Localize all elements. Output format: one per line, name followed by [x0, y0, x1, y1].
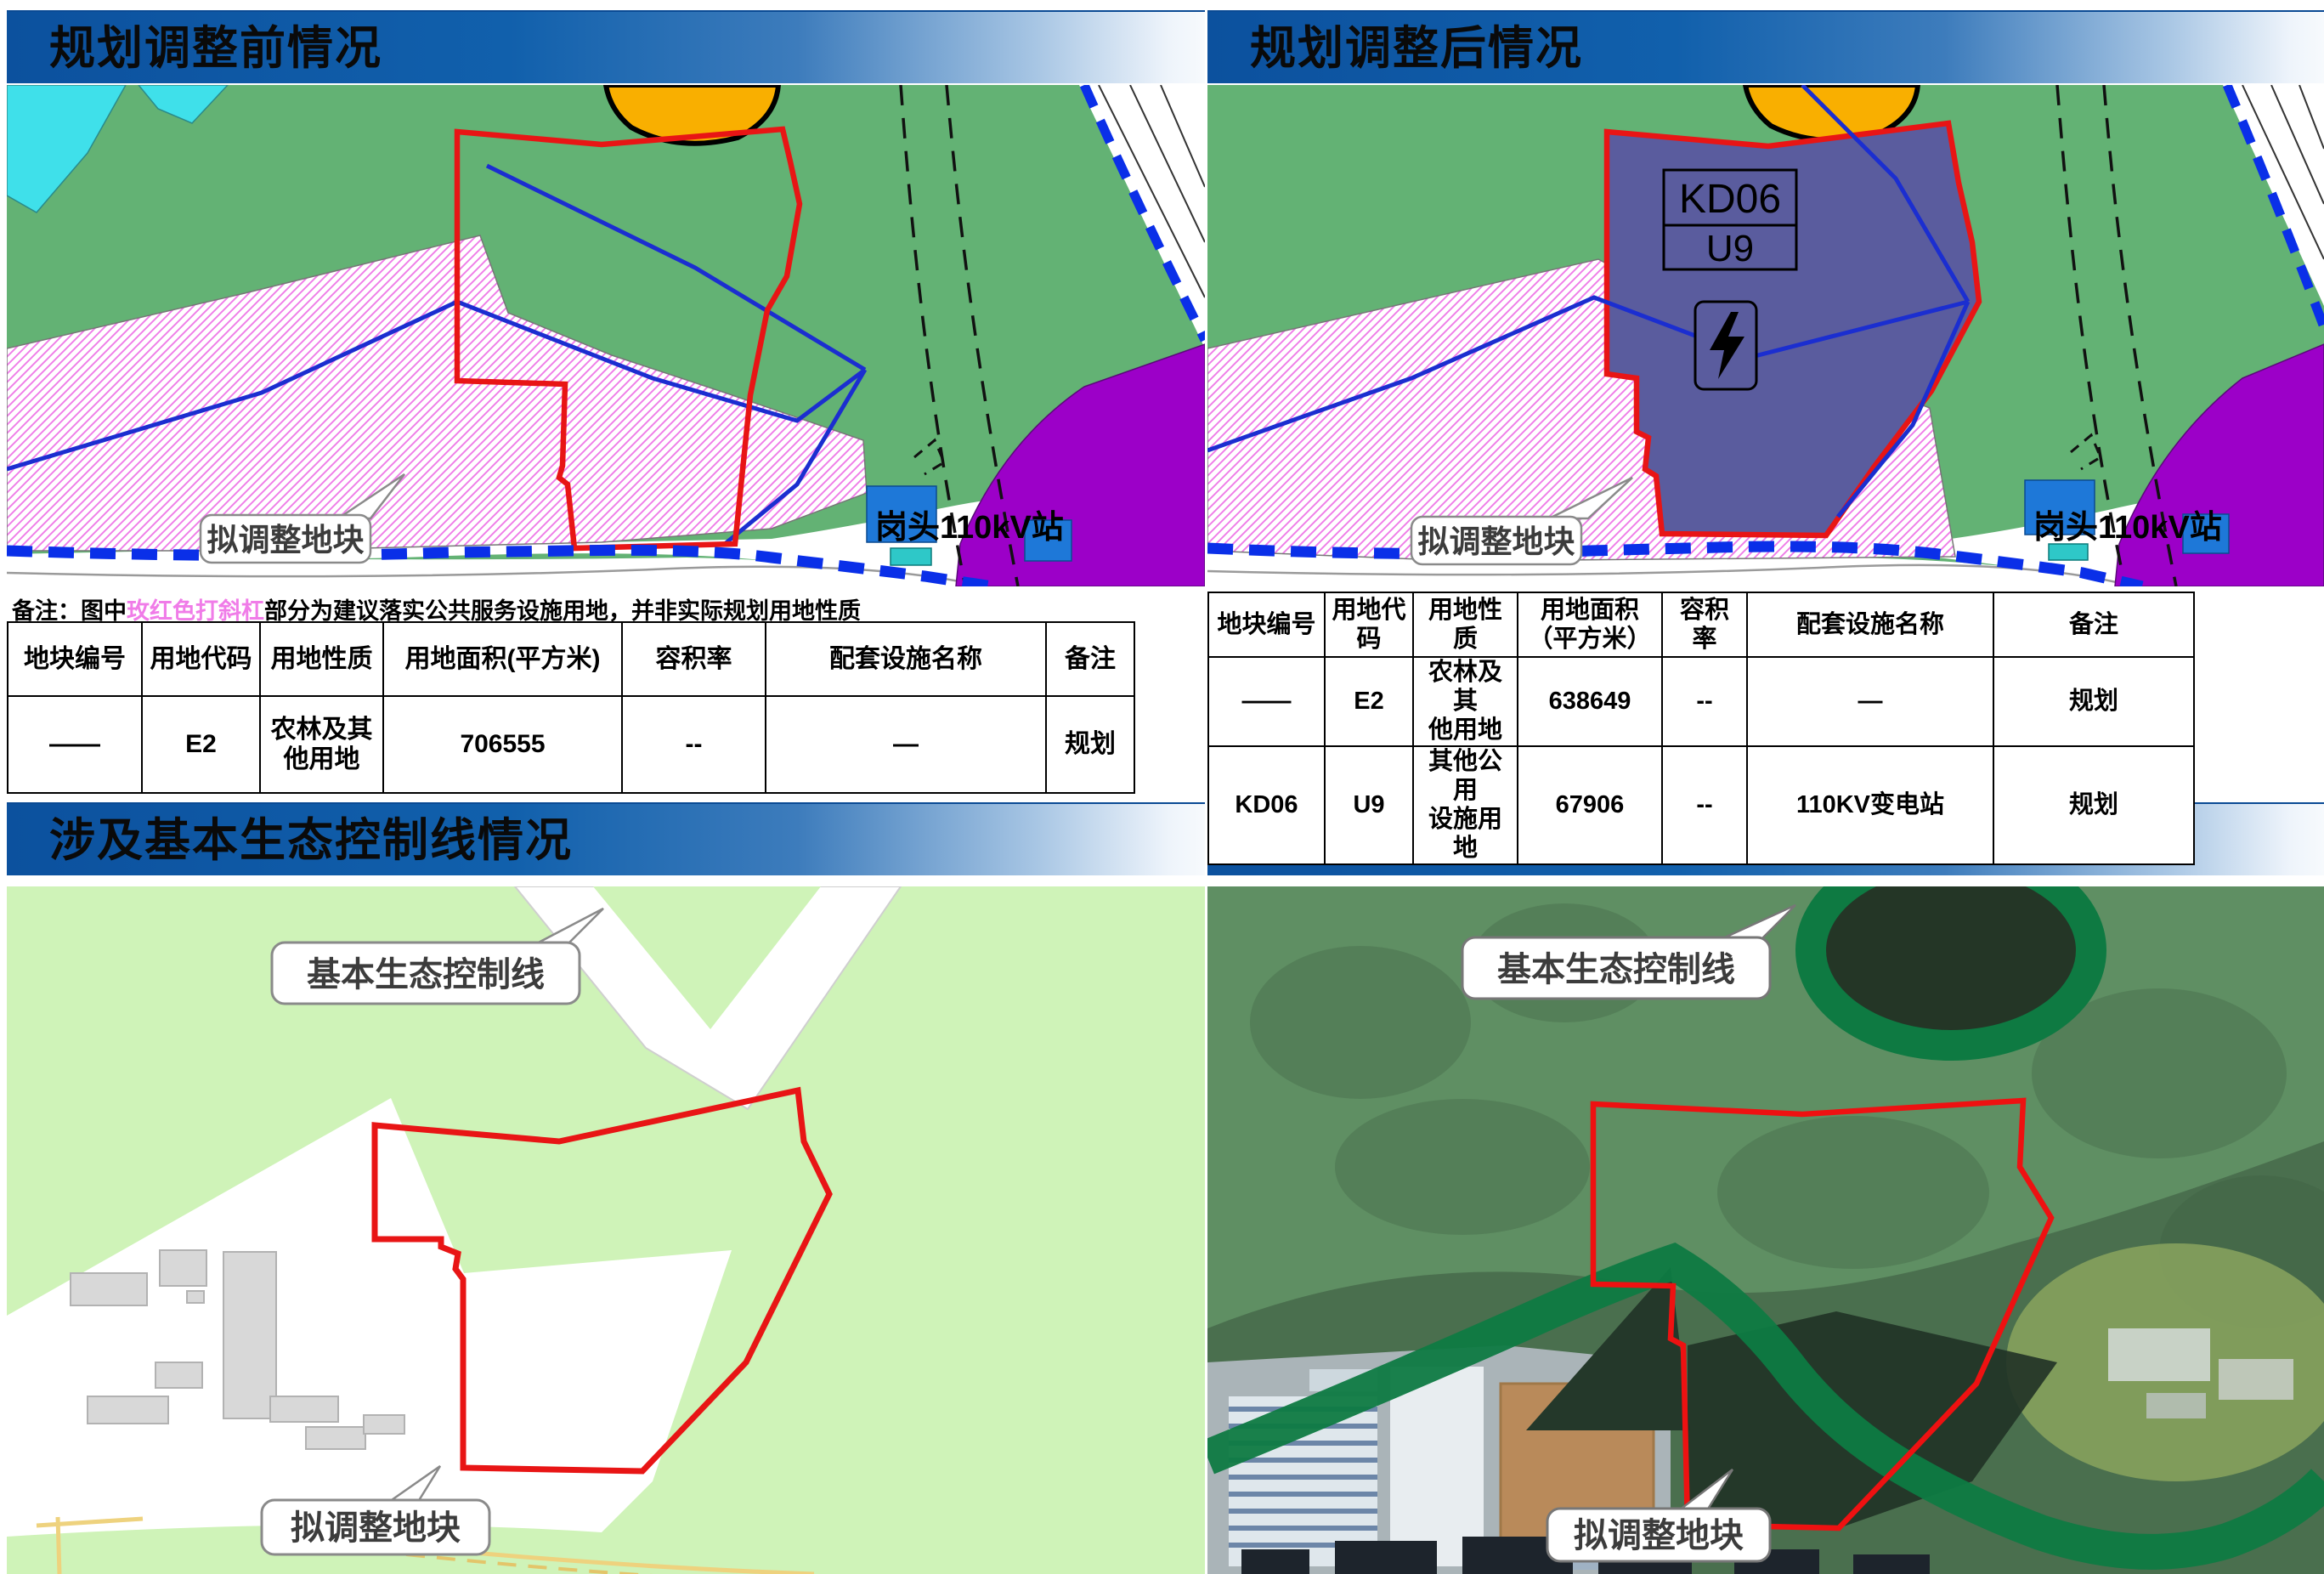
table-cell: ——	[1208, 657, 1325, 746]
table-cell: E2	[1325, 657, 1413, 746]
section-title-after: 规划调整后情况	[1250, 23, 1583, 74]
zoning-map-before: 岗头110kV站 拟调整地块	[7, 85, 1205, 586]
table-cell: 规划	[1046, 696, 1134, 793]
parcel-use-label: U9	[1706, 228, 1754, 269]
plot-callout-label: 拟调整地块	[291, 1509, 461, 1547]
column-header: 用地面积 （平方米）	[1518, 592, 1662, 657]
table-row: ——E2农林及其 他用地706555--—规划	[8, 696, 1134, 793]
section-title-eco: 涉及基本生态控制线情况	[49, 815, 573, 866]
table-cell: 67906	[1518, 746, 1662, 864]
section-header-before: 规划调整前情况	[7, 10, 1205, 83]
building-teal	[2049, 544, 2088, 560]
table-row: KD06U9其他公用 设施用地67906--110KV变电站规划	[1208, 746, 2194, 864]
table-cell: --	[1662, 657, 1747, 746]
facility-roof-2	[2219, 1359, 2293, 1400]
table-row: ——E2农林及其 他用地638649--—规划	[1208, 657, 2194, 746]
column-header: 用地性质	[260, 622, 383, 696]
land-table-before: 地块编号用地代码用地性质用地面积(平方米)容积率配套设施名称备注——E2农林及其…	[7, 621, 1135, 794]
table-cell: --	[622, 696, 766, 793]
section-header-after: 规划调整后情况	[1207, 10, 2324, 83]
table-cell: 农林及其 他用地	[1413, 657, 1518, 746]
zoning-map-after: KD06 U9 岗头110kV站 拟调整地块	[1207, 85, 2324, 586]
column-header: 用地性质	[1413, 592, 1518, 657]
column-header: 容积率	[622, 622, 766, 696]
table-cell: KD06	[1208, 746, 1325, 864]
table-cell: 110KV变电站	[1747, 746, 1993, 864]
facility-roof	[2108, 1328, 2210, 1381]
column-header: 配套设施名称	[1747, 592, 1993, 657]
table-cell: 农林及其 他用地	[260, 696, 383, 793]
column-header: 地块编号	[1208, 592, 1325, 657]
table-cell: 其他公用 设施用地	[1413, 746, 1518, 864]
column-header: 配套设施名称	[766, 622, 1046, 696]
section-title-before: 规划调整前情况	[49, 23, 382, 74]
section-header-eco: 涉及基本生态控制线情况	[7, 802, 1205, 875]
plot-callout-label: 拟调整地块	[1418, 524, 1575, 559]
column-header: 容积 率	[1662, 592, 1747, 657]
table-cell: 规划	[1993, 657, 2194, 746]
table-cell: U9	[1325, 746, 1413, 864]
eco-callout-label: 基本生态控制线	[1497, 951, 1735, 988]
note-suffix: 部分为建议落实公共服务设施用地，并非实际规划用地性质	[264, 598, 861, 624]
column-header: 用地代码	[1325, 592, 1413, 657]
column-header: 用地代码	[142, 622, 260, 696]
table-cell: --	[1662, 746, 1747, 864]
column-header: 地块编号	[8, 622, 142, 696]
substation-lightning-icon	[1695, 302, 1756, 389]
facility-roof-3	[2146, 1393, 2206, 1418]
table-cell: 706555	[383, 696, 622, 793]
table-cell: 638649	[1518, 657, 1662, 746]
table-cell: E2	[142, 696, 260, 793]
column-header: 备注	[1046, 622, 1134, 696]
column-header: 用地面积(平方米)	[383, 622, 622, 696]
note-highlight: 玫红色打斜杠	[127, 598, 264, 624]
satellite-map: 基本生态控制线 拟调整地块	[1207, 886, 2324, 1574]
parcel-code-label: KD06	[1679, 177, 1781, 222]
land-table-after: 地块编号用地代码用地性质用地面积 （平方米）容积 率配套设施名称备注——E2农林…	[1207, 592, 2195, 865]
plot-callout-label: 拟调整地块	[1574, 1517, 1744, 1554]
note-prefix: 备注：图中	[12, 598, 127, 624]
table-cell: —	[1747, 657, 1993, 746]
table-cell: ——	[8, 696, 142, 793]
station-label: 岗头110kV站	[875, 510, 1064, 546]
eco-callout-label: 基本生态控制线	[307, 956, 545, 994]
table-cell: —	[766, 696, 1046, 793]
building-teal	[891, 548, 931, 565]
eco-control-map: 基本生态控制线 拟调整地块	[7, 886, 1205, 1574]
station-label: 岗头110kV站	[2033, 510, 2222, 546]
plot-callout-label: 拟调整地块	[207, 523, 365, 558]
column-header: 备注	[1993, 592, 2194, 657]
table-cell: 规划	[1993, 746, 2194, 864]
